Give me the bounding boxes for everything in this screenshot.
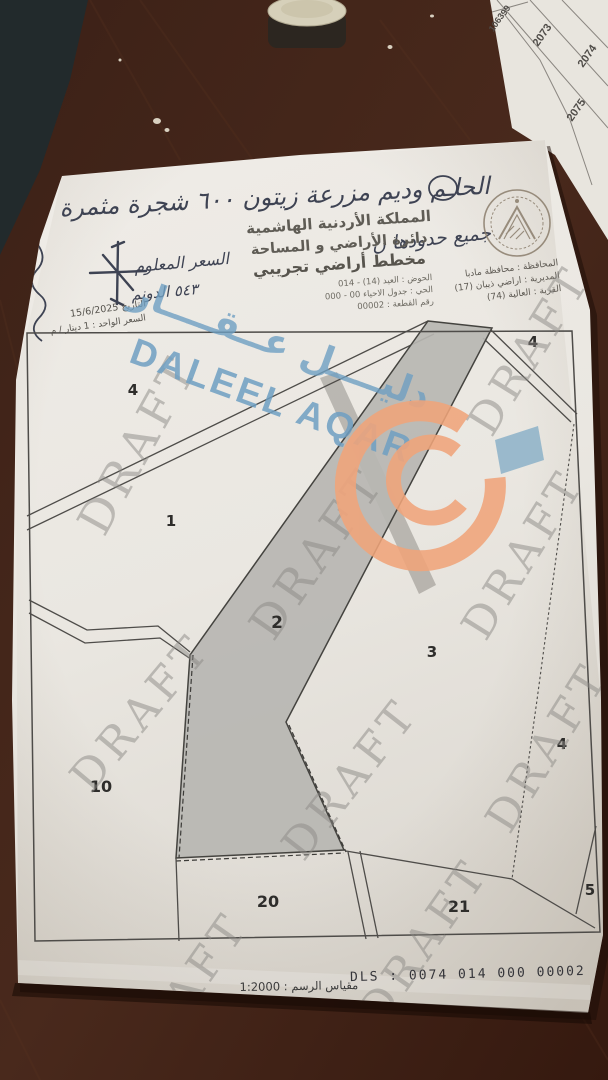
parcel-label: 20 [257, 892, 279, 911]
parcel-label: 3 [427, 643, 437, 661]
bottle-cap-object [268, 0, 346, 48]
photo-of-cadastral-map: 99 1063 2073 2074 2075 الحاـم وديم مزرعة… [0, 0, 608, 1080]
parcel-label: 5 [585, 881, 595, 899]
parcel-label: 1 [166, 512, 176, 530]
